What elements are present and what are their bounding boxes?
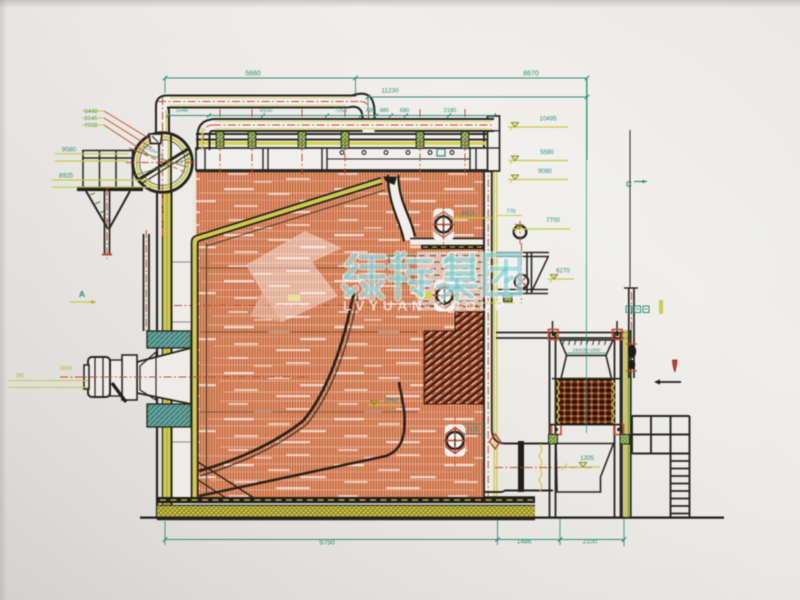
svg-text:9580: 9580 — [62, 147, 77, 154]
svg-text:680: 680 — [400, 108, 409, 114]
svg-text:1486: 1486 — [517, 539, 532, 546]
svg-text:7938: 7938 — [85, 123, 98, 129]
svg-text:2100: 2100 — [583, 539, 598, 546]
svg-text:10495: 10495 — [539, 116, 557, 123]
svg-text:1305: 1305 — [580, 455, 594, 462]
svg-text:3000: 3000 — [60, 366, 72, 372]
svg-text:5660: 5660 — [245, 71, 261, 78]
svg-text:485: 485 — [366, 108, 375, 114]
svg-text:5580: 5580 — [540, 149, 554, 156]
svg-text:LVYUAN GROUP: LVYUAN GROUP — [343, 298, 509, 314]
svg-text:8925: 8925 — [59, 173, 74, 180]
svg-text:2100: 2100 — [467, 427, 479, 433]
svg-text:8603: 8603 — [461, 211, 475, 217]
svg-text:8145: 8145 — [85, 116, 98, 122]
svg-text:2180: 2180 — [444, 108, 456, 114]
svg-text:770: 770 — [506, 209, 515, 215]
svg-text:8670: 8670 — [523, 71, 539, 78]
svg-text:6270: 6270 — [556, 268, 570, 275]
svg-text:A: A — [79, 289, 85, 299]
svg-text:9080: 9080 — [538, 168, 552, 175]
svg-text:480: 480 — [379, 108, 388, 114]
svg-text:2960: 2960 — [384, 398, 398, 404]
svg-text:1546: 1546 — [176, 108, 188, 114]
svg-text:9100: 9100 — [260, 108, 272, 114]
svg-text:9750: 9750 — [319, 540, 335, 547]
svg-text:7700: 7700 — [546, 217, 560, 224]
svg-text:360: 360 — [16, 373, 25, 379]
svg-text:7255: 7255 — [335, 108, 347, 114]
svg-text:C: C — [626, 180, 632, 189]
svg-text:11230: 11230 — [381, 88, 399, 95]
svg-text:8448: 8448 — [85, 109, 98, 115]
